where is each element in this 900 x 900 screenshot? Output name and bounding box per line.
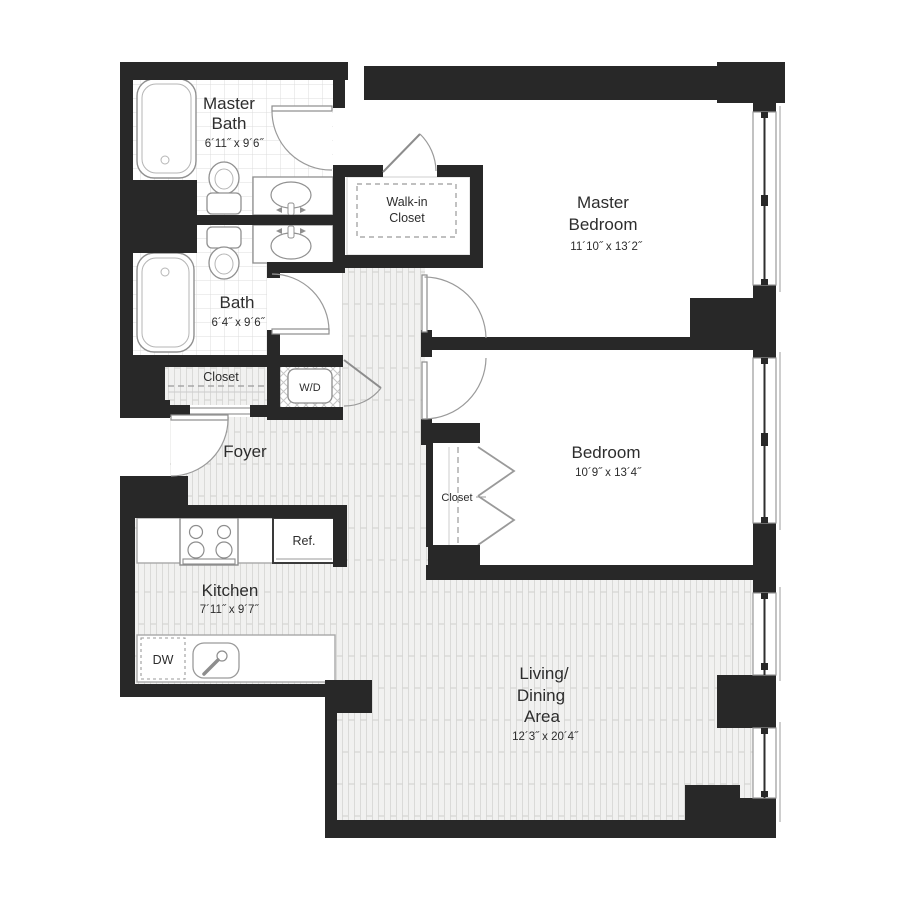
bath-dims: 6´4˝ x 9´6˝ [211,317,265,329]
wall-kitchen-east [333,505,347,567]
passage-floor [345,505,428,567]
master-bedroom-label-line1: Master [577,193,629,212]
living-dining-dims: 12´3˝ x 20´4˝ [512,731,579,743]
wall-corner-bottom-right-b [740,798,776,823]
wall-living-column [717,675,776,728]
wall-kitchen-south [128,684,345,697]
wall-living-west [325,697,337,820]
wall-entry-south-block [120,476,188,505]
wall-bottom [325,820,776,838]
wall-bedroom-closet-north [428,423,480,443]
living-dining-label-line3: Area [524,707,560,726]
wall-bedroom-closet-south [428,545,480,567]
bedroom-closet-label: Closet [441,492,472,504]
bath-tub-icon [137,253,194,352]
dishwasher-label: DW [153,653,174,667]
walk-in-closet-door [383,134,436,172]
bedroom-label: Bedroom [572,443,641,462]
bath-label: Bath [220,293,255,312]
wall-walk-in-south [333,255,483,268]
floor-plan-drawing: Master Bath 6´11˝ x 9´6˝ Bath 6´4˝ x 9´6… [0,0,900,900]
hall-closet-label: Closet [203,370,239,384]
wall-walk-in-north-right [437,165,470,177]
wall-laundry-south [267,407,343,420]
window-master-bedroom [753,106,780,292]
wall-bedroom-divider-east-block [690,298,753,350]
wall-window-pier-1 [753,285,776,358]
master-bedroom-door [422,275,486,338]
kitchen-dims: 7´11˝ x 9´7˝ [200,604,260,616]
wall-top-bedroom-section [364,66,717,100]
wall-kitchen-west [120,500,135,697]
walk-in-closet-label-line1: Walk-in [386,195,427,209]
floor-plan-page: Master Bath 6´11˝ x 9´6˝ Bath 6´4˝ x 9´6… [0,0,900,900]
living-dining-label-line1: Living/ [519,664,568,683]
kitchen-label: Kitchen [202,581,259,600]
wall-bath-divider [133,215,345,225]
stove-icon [180,518,238,565]
master-bedroom-label-line2: Bedroom [569,215,638,234]
window-bedroom [753,352,780,530]
hall-floor [342,268,425,417]
wall-corner-bottom-right-a [685,785,740,823]
bath-door-swing [272,274,329,331]
wall-bedroom-closet-west [426,443,433,547]
refrigerator-label: Ref. [293,534,316,548]
bath-sink-icon [253,225,333,263]
wall-top-bath-section [120,62,348,80]
bedroom-dims: 10´9˝ x 13´4˝ [575,467,642,479]
bedroom-door [422,358,486,419]
wall-kitchen-north [133,505,345,518]
wall-bath-east-stub [267,262,280,278]
master-bath-sink-icon [253,177,333,215]
foyer-label: Foyer [223,442,267,461]
window-living-upper [753,587,780,681]
master-bath-dims: 6´11˝ x 9´6˝ [205,138,265,150]
master-bath-label-line2: Bath [212,114,247,133]
living-dining-label-line2: Dining [517,686,565,705]
master-bath-toilet-icon [207,162,241,214]
washer-dryer-label: W/D [299,382,320,394]
master-bath-label-line1: Master [203,94,255,113]
bath-toilet-icon [207,227,241,279]
wall-corner-top-right [717,62,785,103]
kitchen-sink-icon [193,643,239,678]
master-bedroom-dims: 11´10˝ x 13´2˝ [570,241,643,253]
walk-in-closet-label-line2: Closet [389,211,425,225]
wall-entry-north-block [120,400,170,418]
wall-bedroom-south [426,565,755,580]
bedroom-closet-bifold-doors [478,447,514,545]
wall-walk-in-north-left [333,165,383,177]
wall-walk-in-east [470,165,483,268]
master-bath-tub-icon [137,79,196,178]
wall-window-pier-2 [753,523,776,593]
wall-master-bath-east-upper [333,66,345,108]
